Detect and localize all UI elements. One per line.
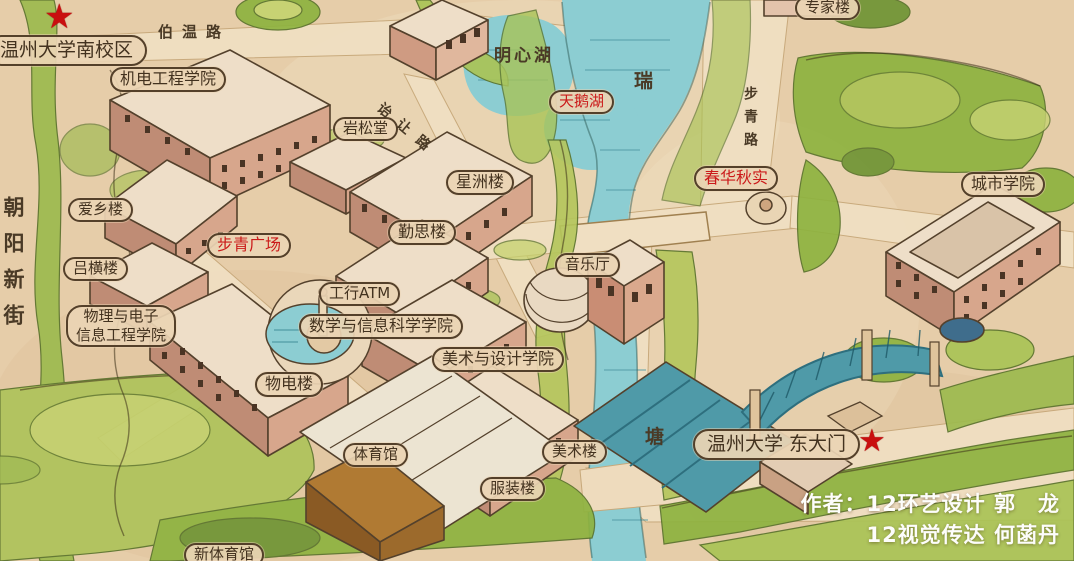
music-hall-label: 音乐厅 — [555, 253, 620, 277]
physics-college-label: 物理与电子 信息工程学院 — [66, 305, 176, 347]
buqing-road-label: 步青路 — [740, 86, 760, 155]
bowen-road-label: 伯温路 — [158, 21, 230, 42]
math-college-label: 数学与信息科学学院 — [299, 314, 463, 339]
buqing-square-label: 步青广场 — [207, 233, 291, 258]
campus-name-label: 温州大学南校区 — [0, 35, 147, 66]
expert-building-label: 专家楼 — [795, 0, 860, 20]
art-building-label: 美术楼 — [542, 440, 607, 464]
credit-line-1: 作者：12环艺设计 郭 龙 — [800, 488, 1060, 518]
east-gate-star-icon: ★ — [858, 426, 886, 457]
south-campus-star-icon: ★ — [44, 0, 74, 34]
chaoyang-street-label: 朝阳新街 — [0, 196, 28, 340]
mech-college-label: 机电工程学院 — [110, 67, 226, 92]
physics-college-line1: 物理与电子 — [76, 307, 166, 326]
chunhua-qiushi-label: 春华秋实 — [694, 166, 778, 191]
east-gate-label: 温州大学 东大门 — [693, 429, 860, 460]
xingzhou-building-label: 星洲楼 — [446, 170, 514, 195]
campus-map: ★ 温州大学南校区 伯温路 机电工程学院 岩松堂 诒让路 明心湖 天鹅湖 瑞 塘… — [0, 0, 1074, 561]
river-tang-label: 塘 — [645, 422, 667, 449]
lvheng-building-label: 吕横楼 — [63, 257, 128, 281]
swan-lake-label: 天鹅湖 — [549, 90, 614, 114]
clothing-building-label: 服装楼 — [480, 477, 545, 501]
new-gymnasium-label: 新体育馆 — [184, 543, 264, 561]
mingxin-lake-label: 明心湖 — [494, 41, 554, 66]
wudian-building-label: 物电楼 — [255, 372, 323, 397]
physics-college-line2: 信息工程学院 — [76, 326, 166, 345]
qinsi-building-label: 勤思楼 — [388, 220, 456, 245]
credit-line-2: 12视觉传达 何菡丹 — [866, 519, 1060, 549]
city-college-label: 城市学院 — [961, 172, 1045, 197]
icbc-atm-label: 工行ATM — [319, 282, 400, 306]
river-rui-label: 瑞 — [634, 66, 656, 93]
gymnasium-label: 体育馆 — [343, 443, 408, 467]
art-college-label: 美术与设计学院 — [432, 347, 564, 372]
aixiang-building-label: 爱乡楼 — [68, 198, 133, 222]
